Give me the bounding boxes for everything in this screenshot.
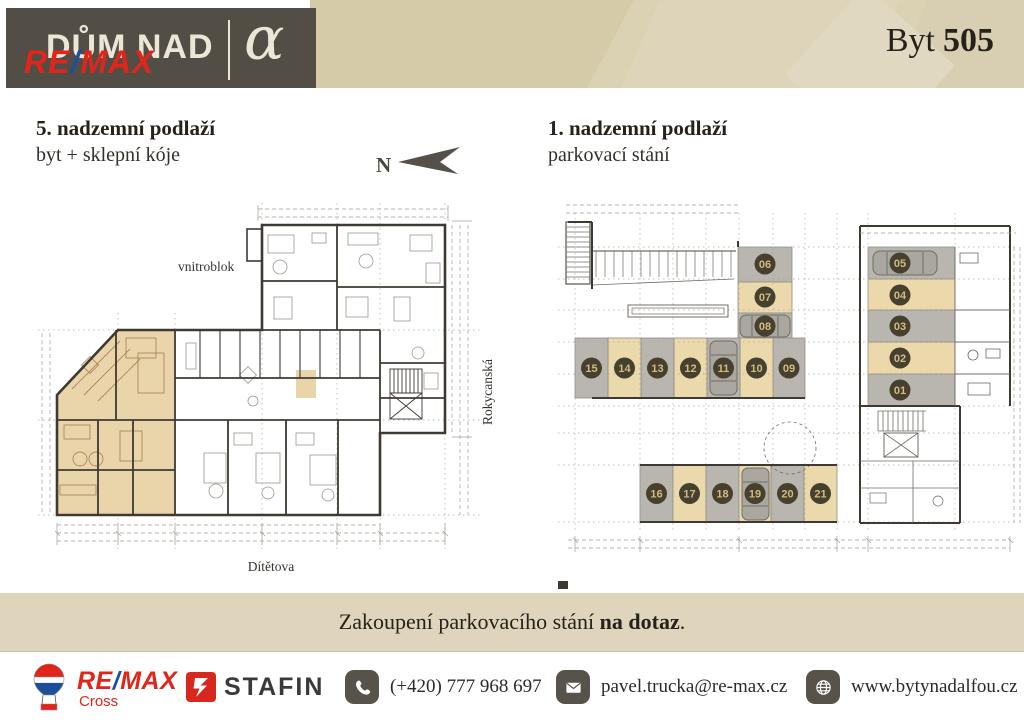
parking-badge-number: 11 <box>718 363 730 375</box>
parking-badge-number: 05 <box>894 258 906 270</box>
parking-spot-01 <box>868 374 955 406</box>
notice-bold: na dotaz <box>600 609 680 634</box>
remax-max: MAX <box>120 667 177 695</box>
left-plan-title: 5. nadzemní podlaží <box>36 116 215 141</box>
header-deco-shape <box>310 0 639 88</box>
parking-badge-number: 14 <box>618 363 631 375</box>
parking-badge-number: 21 <box>814 488 826 500</box>
remax-max: MAX <box>80 44 154 80</box>
parking-badge-number: 13 <box>651 363 663 375</box>
notice-text: Zakoupení parkovacího stání <box>339 609 600 634</box>
remax-balloon-icon <box>28 662 70 714</box>
north-arrow: N <box>368 142 464 182</box>
logo-divider <box>228 20 230 80</box>
parking-badge-number: 09 <box>783 363 795 375</box>
parking-spot-04 <box>868 279 955 310</box>
remax-re: RE <box>77 667 113 695</box>
stafin-logo: STAFIN <box>186 672 324 702</box>
parking-badge-number: 02 <box>894 353 906 365</box>
remax-cross-logo: RE/MAX Cross <box>28 662 177 714</box>
highlighted-cellar-box <box>296 370 316 398</box>
parking-badge-number: 07 <box>759 292 771 304</box>
right-plan-subtitle: parkovací stání <box>548 144 670 167</box>
north-letter: N <box>376 153 391 177</box>
left-plan-subtitle: byt + sklepní kóje <box>36 144 180 167</box>
parking-badge-number: 17 <box>683 488 695 500</box>
email-icon <box>556 670 590 704</box>
remax-slash: / <box>70 44 80 80</box>
apartment-word: Byt <box>886 22 935 59</box>
phone-contact[interactable]: (+420) 777 968 697 <box>345 670 542 704</box>
apartment-title: Byt505 <box>886 22 994 60</box>
parking-badge-number: 19 <box>749 488 761 500</box>
north-arrow-glyph <box>398 147 460 174</box>
right-parking-plan: 0102030405060708091011121314151617181920… <box>548 193 1024 598</box>
footer: RE/MAX Cross STAFIN (+420) 777 968 697 p… <box>0 652 1024 724</box>
street-label-ditetova: Dítětova <box>248 559 295 574</box>
phone-number: (+420) 777 968 697 <box>390 676 542 698</box>
notice-bar: Zakoupení parkovacího stání na dotaz. <box>0 593 1024 652</box>
stafin-wordmark: STAFIN <box>224 673 324 702</box>
email-contact[interactable]: pavel.trucka@re-max.cz <box>556 670 787 704</box>
stafin-icon <box>186 672 216 702</box>
website-contact[interactable]: www.bytynadalfou.cz <box>806 670 1018 704</box>
parking-badge-number: 15 <box>585 363 597 375</box>
phone-icon <box>345 670 379 704</box>
parking-badge-number: 12 <box>684 363 696 375</box>
right-plan-title: 1. nadzemní podlaží <box>548 116 727 141</box>
parking-badge-number: 16 <box>650 488 662 500</box>
alpha-logo-glyph: α <box>244 4 285 74</box>
flyer-page: DŮM NAD α RE/MAX Byt505 5. nadzemní podl… <box>0 0 1024 724</box>
left-floor-plan: vnitroblok Rokycanská Dítětova <box>28 193 523 593</box>
parking-badge-number: 04 <box>894 290 907 302</box>
parking-badge-number: 08 <box>759 321 771 333</box>
notice-period: . <box>680 609 686 634</box>
remax-re: RE <box>24 44 70 80</box>
parking-badge-number: 10 <box>750 363 762 375</box>
globe-icon <box>806 670 840 704</box>
parking-spot-03 <box>868 310 955 342</box>
parking-badge-number: 01 <box>894 385 906 397</box>
parking-badge-number: 18 <box>716 488 728 500</box>
courtyard-label: vnitroblok <box>178 259 234 274</box>
parking-badge-number: 20 <box>781 488 793 500</box>
parking-badge-number: 06 <box>759 259 771 271</box>
website-url: www.bytynadalfou.cz <box>851 676 1018 698</box>
remax-footer-wordmark: RE/MAX <box>77 667 177 696</box>
apartment-number: 505 <box>943 22 994 59</box>
parking-spot-02 <box>868 342 955 374</box>
parking-badge-number: 03 <box>894 321 906 333</box>
email-address: pavel.trucka@re-max.cz <box>601 676 787 698</box>
street-label-rokycanska: Rokycanská <box>480 359 495 425</box>
remax-logo-header: RE/MAX <box>24 44 154 81</box>
